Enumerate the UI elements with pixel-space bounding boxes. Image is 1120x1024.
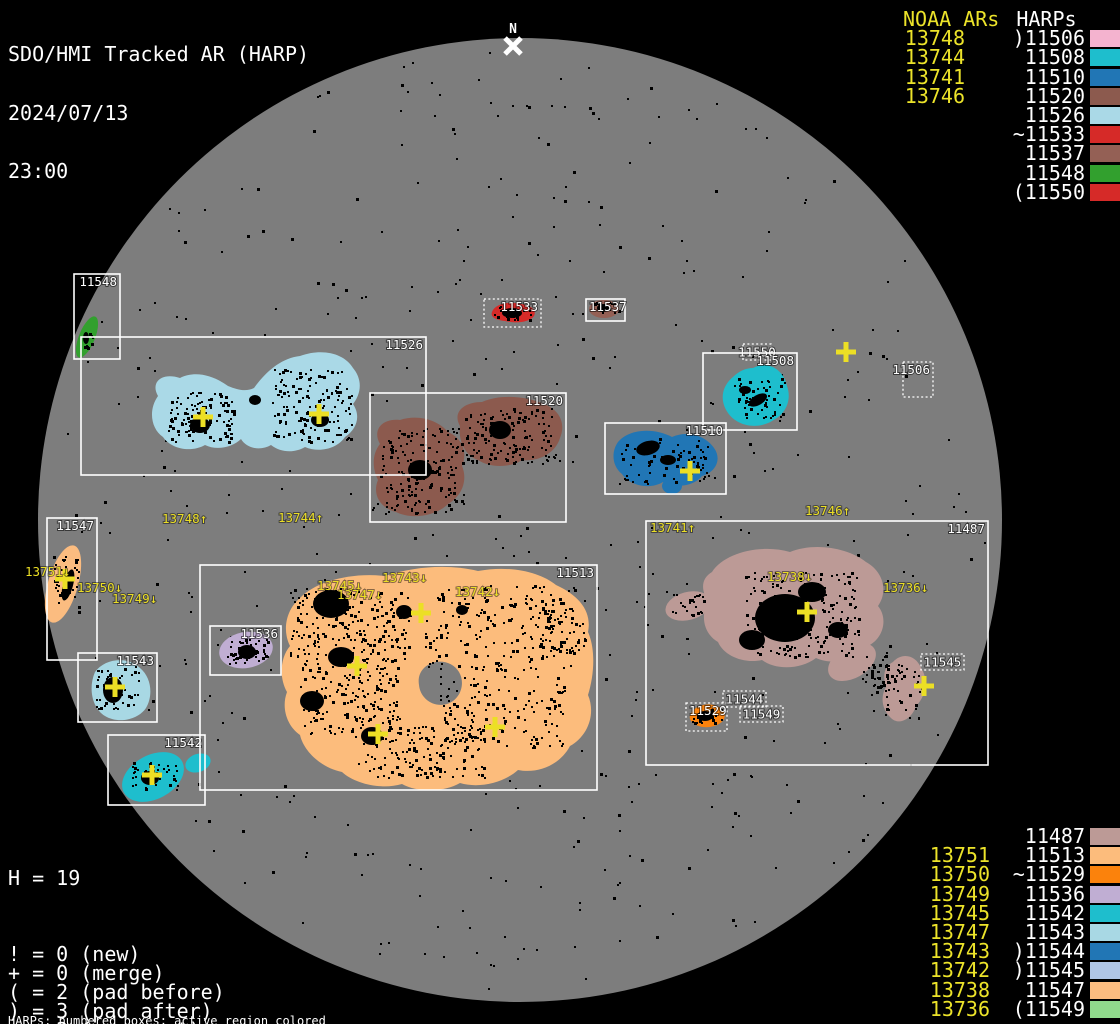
legend-bottom-rows: 11487137511151313750~1152913749115361374… bbox=[890, 827, 1120, 1019]
harp-box-label-11510: 11510 bbox=[685, 423, 723, 438]
legend-bottom-right: 11487137511151313750~1152913749115361374… bbox=[890, 827, 1120, 1019]
noaa-label-13741: 13741↑ bbox=[650, 520, 695, 535]
legend-swatch-11536 bbox=[1090, 886, 1120, 903]
harp-box-label-11547: 11547 bbox=[56, 518, 94, 533]
harp-box-label-11548: 11548 bbox=[79, 274, 117, 289]
harp-box-label-11549: 11549 bbox=[743, 707, 781, 722]
legend-swatch-11542 bbox=[1090, 905, 1120, 922]
legend-row: 13750~11529 bbox=[890, 865, 1120, 884]
legend-row: 13743)11544 bbox=[890, 942, 1120, 961]
noaa-label-13746: 13746↑ bbox=[805, 503, 850, 518]
harp-box-label-11545: 11545 bbox=[924, 655, 962, 670]
legend-swatch-11533 bbox=[1090, 126, 1120, 143]
noaa-label-13751: 13751↓ bbox=[25, 564, 70, 579]
harp-box-label-11529: 11529 bbox=[689, 703, 727, 718]
harp-box-label-11508: 11508 bbox=[756, 353, 794, 368]
legend-harp-11550: (11550 bbox=[965, 183, 1085, 202]
legend-row: 1374611520 bbox=[890, 87, 1120, 106]
legend-top-rows: 13748)1150613744115081374111510137461152… bbox=[890, 29, 1120, 202]
footer-notes: HARPs: numbered boxes; active region col… bbox=[8, 989, 427, 1024]
page-title: SDO/HMI Tracked AR (HARP) bbox=[8, 45, 309, 65]
legend-swatch-11543 bbox=[1090, 924, 1120, 941]
legend-row: 1374511542 bbox=[890, 904, 1120, 923]
legend-row: 11526 bbox=[890, 106, 1120, 125]
legend-top-right: NOAA ARs HARPs 13748)1150613744115081374… bbox=[890, 10, 1120, 202]
legend-swatch-11526 bbox=[1090, 107, 1120, 124]
legend-row: 1373811547 bbox=[890, 981, 1120, 1000]
north-label: N bbox=[509, 22, 517, 37]
legend-swatch-11550 bbox=[1090, 184, 1120, 201]
legend-swatch-11506 bbox=[1090, 30, 1120, 47]
legend-swatch-11549 bbox=[1090, 1001, 1120, 1018]
footer-line-1: HARPs: numbered boxes; active region col… bbox=[8, 1015, 427, 1024]
active-region-11510-tail bbox=[662, 478, 682, 494]
harp-box-label-11542: 11542 bbox=[164, 735, 202, 750]
legend-row: 13742)11545 bbox=[890, 961, 1120, 980]
legend-row: 1375111513 bbox=[890, 846, 1120, 865]
legend-swatch-11529 bbox=[1090, 866, 1120, 883]
noaa-label-13742: 13742↓ bbox=[455, 584, 500, 599]
legend-row: 13736(11549 bbox=[890, 1000, 1120, 1019]
harp-box-label-11536: 11536 bbox=[240, 626, 278, 641]
harp-box-label-11520: 11520 bbox=[525, 393, 563, 408]
legend-swatch-11487 bbox=[1090, 828, 1120, 845]
legend-swatch-11520 bbox=[1090, 88, 1120, 105]
legend-row: 11487 bbox=[890, 827, 1120, 846]
observation-date: 2024/07/13 bbox=[8, 104, 309, 124]
noaa-label-13748: 13748↑ bbox=[162, 511, 207, 526]
legend-swatch-11548 bbox=[1090, 165, 1120, 182]
legend-row: 1374911536 bbox=[890, 885, 1120, 904]
harp-box-label-11526: 11526 bbox=[385, 337, 423, 352]
legend-row: 11548 bbox=[890, 164, 1120, 183]
legend-noaa-13746: 13746 bbox=[890, 87, 965, 106]
legend-row: ~11533 bbox=[890, 125, 1120, 144]
harp-box-label-11544: 11544 bbox=[726, 692, 764, 707]
title-block: SDO/HMI Tracked AR (HARP) 2024/07/13 23:… bbox=[8, 6, 309, 221]
legend-swatch-11544 bbox=[1090, 943, 1120, 960]
harp-map-stage: 1154811526115331153711550115081150611510… bbox=[0, 0, 1120, 1024]
legend-row: (11550 bbox=[890, 183, 1120, 202]
harp-count: H = 19 bbox=[8, 869, 237, 889]
legend-row: 11537 bbox=[890, 144, 1120, 163]
noaa-label-13743: 13743↓ bbox=[382, 570, 427, 585]
legend-harp-11549: (11549 bbox=[990, 1000, 1085, 1019]
north-marker: N bbox=[505, 22, 521, 54]
legend-swatch-11547 bbox=[1090, 982, 1120, 999]
legend-noaa-13736: 13736 bbox=[890, 1000, 990, 1019]
harp-box-label-11543: 11543 bbox=[116, 653, 154, 668]
noaa-label-13736: 13736↓ bbox=[883, 580, 928, 595]
legend-swatch-11510 bbox=[1090, 69, 1120, 86]
harp-box-label-11533: 11533 bbox=[500, 299, 538, 314]
harp-box-label-11513: 11513 bbox=[556, 565, 594, 580]
noaa-label-13738: 13738↓ bbox=[767, 569, 812, 584]
noaa-label-13744: 13744↑ bbox=[278, 510, 323, 525]
legend-swatch-11513 bbox=[1090, 847, 1120, 864]
harp-box-label-11487: 11487 bbox=[947, 521, 985, 536]
harp-box-label-11506: 11506 bbox=[892, 362, 930, 377]
noaa-label-13747: 13747↓ bbox=[337, 587, 382, 602]
legend-swatch-11508 bbox=[1090, 49, 1120, 66]
observation-time: 23:00 bbox=[8, 162, 309, 182]
harp-box-label-11537: 11537 bbox=[589, 299, 627, 314]
legend-swatch-11537 bbox=[1090, 145, 1120, 162]
legend-swatch-11545 bbox=[1090, 962, 1120, 979]
noaa-label-13749: 13749↓ bbox=[112, 591, 157, 606]
legend-row: 1374711543 bbox=[890, 923, 1120, 942]
